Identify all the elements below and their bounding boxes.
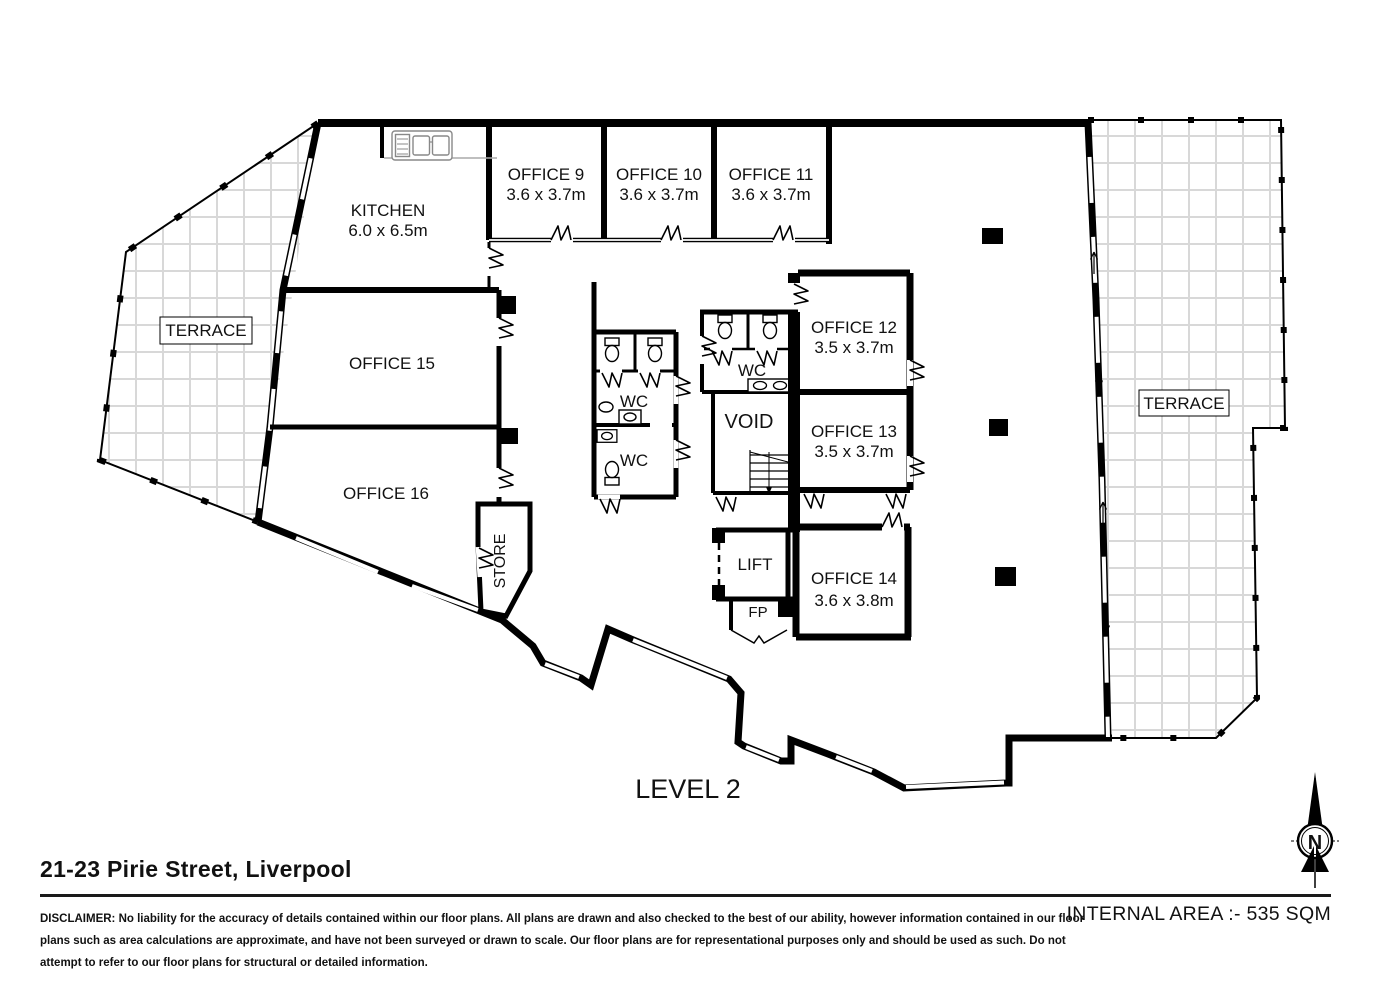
floor-plan-drawing: KITCHEN 6.0 x 6.5m OFFICE 9 3.6 x 3.7m O… (0, 0, 1400, 998)
column-marker (712, 585, 725, 600)
toilet-icon (718, 315, 732, 339)
disclaimer-text: DISCLAIMER: No liability for the accurac… (40, 908, 1084, 974)
terrace-right-area (1088, 120, 1285, 738)
window-segment (412, 586, 478, 610)
door-swing-icon (600, 499, 620, 513)
disclaimer-line-3: attempt to refer to our floor plans for … (40, 952, 1084, 974)
room-label-kitchen: KITCHEN (351, 201, 426, 220)
room-label-office-9: OFFICE 9 (508, 165, 585, 184)
room-dims-office-11: 3.6 x 3.7m (731, 185, 810, 204)
door-swing-icon (773, 226, 793, 240)
room-label-office-15: OFFICE 15 (349, 354, 435, 373)
wc-center-block (700, 312, 798, 493)
column-marker (497, 296, 516, 314)
north-label: N (1308, 832, 1322, 854)
sink-icon (619, 410, 641, 424)
stairs-icon (750, 450, 788, 493)
room-label-office-13: OFFICE 13 (811, 422, 897, 441)
toilet-icon (763, 315, 777, 339)
column-marker (499, 428, 518, 444)
room-label-office-14: OFFICE 14 (811, 569, 897, 588)
title-divider (40, 894, 1331, 897)
room-label-wc-center: WC (738, 361, 766, 380)
internal-area-label: INTERNAL AREA :- 535 SQM (1067, 903, 1331, 926)
window-segment (545, 664, 579, 677)
door-swing-icon (702, 336, 716, 356)
door-swing-icon (886, 494, 906, 508)
sink-icon (599, 402, 613, 412)
room-label-terrace-left: TERRACE (165, 321, 246, 340)
door-symbols (479, 226, 924, 568)
room-label-wc-left-upper: WC (620, 392, 648, 411)
toilet-icon (605, 338, 619, 362)
door-swing-icon (661, 226, 681, 240)
room-label-terrace-right: TERRACE (1143, 394, 1224, 413)
fp-column (778, 599, 793, 617)
room-label-fp: FP (748, 604, 767, 621)
door-swing-icon (716, 497, 736, 511)
wc-center-sink-counter (748, 379, 792, 392)
room-label-lift: LIFT (738, 555, 773, 574)
room-label-office-10: OFFICE 10 (616, 165, 702, 184)
toilet-icon (648, 338, 662, 362)
room-label-void: VOID (725, 411, 774, 433)
wall-bottom-zigzag (258, 522, 1112, 788)
level-label: LEVEL 2 (635, 774, 741, 804)
door-swing-icon (804, 494, 824, 508)
column-marker (989, 419, 1008, 436)
room-dims-office-9: 3.6 x 3.7m (506, 185, 585, 204)
page-title: 21-23 Pirie Street, Liverpool (40, 856, 352, 883)
door-swing-icon (640, 373, 660, 387)
column-marker (982, 228, 1003, 244)
window-segment (296, 538, 378, 572)
window-segment (633, 640, 727, 678)
sink-icon (597, 430, 617, 443)
room-dims-office-13: 3.5 x 3.7m (814, 442, 893, 461)
room-dims-office-10: 3.6 x 3.7m (619, 185, 698, 204)
room-label-store: STORE (492, 534, 509, 589)
column-marker (712, 528, 725, 543)
room-dims-kitchen: 6.0 x 6.5m (348, 221, 427, 240)
disclaimer-line-1: DISCLAIMER: No liability for the accurac… (40, 908, 1084, 930)
north-arrow-icon: N (1291, 772, 1339, 888)
room-label-office-16: OFFICE 16 (343, 484, 429, 503)
room-dims-office-12: 3.5 x 3.7m (814, 338, 893, 357)
door-swing-icon (882, 513, 902, 527)
door-swing-icon (551, 226, 571, 240)
room-label-office-12: OFFICE 12 (811, 318, 897, 337)
store-door-gap (479, 547, 481, 577)
toilet-icon (605, 462, 619, 486)
door-swing-icon (602, 373, 622, 387)
fp-door-flaps (731, 630, 787, 643)
core-east-thick-wall (788, 312, 800, 532)
door-swing-icon (794, 284, 808, 304)
disclaimer-line-2: plans such as area calculations are appr… (40, 930, 1084, 952)
window-segment (746, 747, 779, 760)
terrace-labels: TERRACE TERRACE (160, 317, 1229, 416)
door-swing-icon (489, 248, 503, 268)
room-label-wc-left-lower: WC (620, 451, 648, 470)
room-label-office-11: OFFICE 11 (729, 165, 814, 184)
window-segment (836, 757, 872, 771)
kitchen-sink-icon (392, 131, 452, 160)
column-marker (995, 567, 1016, 586)
room-dims-office-14: 3.6 x 3.8m (814, 591, 893, 610)
